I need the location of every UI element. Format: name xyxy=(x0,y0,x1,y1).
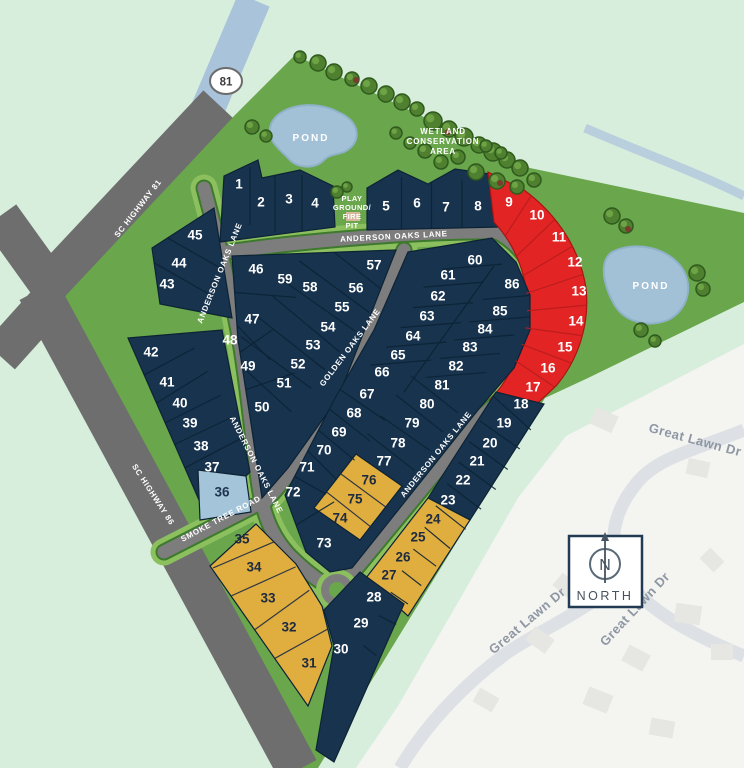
lot-number-75[interactable]: 75 xyxy=(347,492,363,507)
area-label: POND xyxy=(633,281,670,292)
lot-number-23[interactable]: 23 xyxy=(440,493,456,508)
area-label: WETLAND xyxy=(420,127,466,136)
lot-number-27[interactable]: 27 xyxy=(381,568,396,583)
lot-number-80[interactable]: 80 xyxy=(419,397,434,412)
lot-number-46[interactable]: 46 xyxy=(248,262,264,277)
lot-number-47[interactable]: 47 xyxy=(244,312,259,327)
tree-icon xyxy=(294,51,306,63)
tree-icon xyxy=(245,120,259,134)
lot-number-41[interactable]: 41 xyxy=(159,375,175,390)
area-label: PLAY xyxy=(342,194,363,203)
lot-number-82[interactable]: 82 xyxy=(448,359,463,374)
lot-number-45[interactable]: 45 xyxy=(187,228,203,243)
lot-number-81[interactable]: 81 xyxy=(434,378,450,393)
lot-number-15[interactable]: 15 xyxy=(557,340,573,355)
tree-icon xyxy=(361,78,377,94)
house-footprint xyxy=(711,644,733,660)
lot-number-2[interactable]: 2 xyxy=(257,195,265,210)
lot-number-55[interactable]: 55 xyxy=(334,300,350,315)
lot-number-49[interactable]: 49 xyxy=(240,359,255,374)
lot-number-78[interactable]: 78 xyxy=(390,436,406,451)
tree-icon xyxy=(468,164,484,180)
tree-icon xyxy=(689,265,705,281)
tree-icon xyxy=(378,86,394,102)
area-label: FIRE xyxy=(343,212,362,221)
lot-number-32[interactable]: 32 xyxy=(281,620,296,635)
lot-number-54[interactable]: 54 xyxy=(320,320,336,335)
lot-number-61[interactable]: 61 xyxy=(440,268,456,283)
tree-icon xyxy=(326,64,342,80)
lot-number-36[interactable]: 36 xyxy=(214,485,230,500)
lot-number-12[interactable]: 12 xyxy=(567,255,582,270)
lot-number-85[interactable]: 85 xyxy=(492,304,508,319)
lot-number-20[interactable]: 20 xyxy=(482,436,497,451)
shrub-icon xyxy=(625,226,631,232)
lot-number-14[interactable]: 14 xyxy=(568,314,584,329)
lot-number-35[interactable]: 35 xyxy=(234,532,250,547)
lot-number-52[interactable]: 52 xyxy=(290,357,305,372)
tree-icon xyxy=(260,130,272,142)
lot-number-79[interactable]: 79 xyxy=(404,416,419,431)
lot-number-67[interactable]: 67 xyxy=(359,387,374,402)
tree-icon xyxy=(634,323,648,337)
lot-number-60[interactable]: 60 xyxy=(467,253,482,268)
lot-number-10[interactable]: 10 xyxy=(529,208,544,223)
lot-number-37[interactable]: 37 xyxy=(204,460,219,475)
lot-number-53[interactable]: 53 xyxy=(305,338,321,353)
tree-icon xyxy=(604,208,620,224)
lot-number-68[interactable]: 68 xyxy=(346,406,362,421)
lot-number-25[interactable]: 25 xyxy=(410,530,426,545)
lot-number-86[interactable]: 86 xyxy=(504,277,520,292)
north-compass: N NORTH xyxy=(569,532,642,607)
tree-icon xyxy=(390,127,402,139)
lot-number-77[interactable]: 77 xyxy=(376,454,391,469)
lot-number-6[interactable]: 6 xyxy=(413,196,421,211)
tree-icon xyxy=(434,155,448,169)
lot-number-3[interactable]: 3 xyxy=(285,192,293,207)
house-footprint xyxy=(674,603,702,625)
lot-number-24[interactable]: 24 xyxy=(425,512,441,527)
tree-icon xyxy=(342,182,352,192)
lot-number-84[interactable]: 84 xyxy=(477,322,493,337)
lot-number-34[interactable]: 34 xyxy=(246,560,262,575)
lot-number-74[interactable]: 74 xyxy=(332,511,348,526)
lot-number-62[interactable]: 62 xyxy=(430,289,445,304)
tree-icon xyxy=(527,173,541,187)
lot-number-11[interactable]: 11 xyxy=(552,230,567,245)
lot-number-7[interactable]: 7 xyxy=(442,200,450,215)
lot-number-44[interactable]: 44 xyxy=(171,256,187,271)
compass-letter: N xyxy=(599,557,611,574)
site-plan-map: 81 1234567891011121314151617181920212223… xyxy=(0,0,744,768)
lot-number-13[interactable]: 13 xyxy=(571,284,587,299)
lot-number-22[interactable]: 22 xyxy=(455,473,470,488)
lot-number-76[interactable]: 76 xyxy=(361,473,377,488)
lot-number-9[interactable]: 9 xyxy=(505,195,513,210)
lot-number-5[interactable]: 5 xyxy=(382,199,390,214)
tree-icon xyxy=(480,140,492,152)
lot-number-26[interactable]: 26 xyxy=(395,550,411,565)
tree-icon xyxy=(649,335,661,347)
lot-number-65[interactable]: 65 xyxy=(390,348,406,363)
tree-icon xyxy=(696,282,710,296)
tree-icon xyxy=(489,173,505,189)
lot-number-40[interactable]: 40 xyxy=(172,396,187,411)
area-label: POND xyxy=(293,133,330,144)
shrub-icon xyxy=(353,77,359,83)
lot-number-56[interactable]: 56 xyxy=(348,281,364,296)
tree-icon xyxy=(512,160,528,176)
lot-number-31[interactable]: 31 xyxy=(301,656,317,671)
area-label: AREA xyxy=(430,147,456,156)
lot-number-19[interactable]: 19 xyxy=(496,416,511,431)
tree-icon xyxy=(510,180,524,194)
lot-number-51[interactable]: 51 xyxy=(276,376,292,391)
lot-number-1[interactable]: 1 xyxy=(235,177,243,192)
tree-icon xyxy=(394,94,410,110)
highway-shield-number: 81 xyxy=(220,77,233,89)
lot-number-48[interactable]: 48 xyxy=(222,333,238,348)
lot-number-8[interactable]: 8 xyxy=(474,199,482,214)
lot-number-29[interactable]: 29 xyxy=(353,616,368,631)
lot-number-33[interactable]: 33 xyxy=(260,591,276,606)
area-label: GROUND/ xyxy=(333,203,372,212)
lot-number-64[interactable]: 64 xyxy=(405,329,421,344)
lot-number-18[interactable]: 18 xyxy=(513,397,529,412)
lot-number-71[interactable]: 71 xyxy=(299,460,315,475)
shrub-icon xyxy=(497,180,503,186)
lot-number-4[interactable]: 4 xyxy=(311,196,319,211)
lot-number-58[interactable]: 58 xyxy=(302,280,318,295)
lot-number-30[interactable]: 30 xyxy=(333,642,348,657)
lot-number-50[interactable]: 50 xyxy=(254,400,269,415)
lot-number-73[interactable]: 73 xyxy=(316,536,332,551)
compass-label: NORTH xyxy=(577,589,634,603)
lot-number-42[interactable]: 42 xyxy=(143,345,158,360)
lot-number-72[interactable]: 72 xyxy=(285,485,300,500)
lot-number-16[interactable]: 16 xyxy=(540,361,556,376)
lot-number-70[interactable]: 70 xyxy=(316,443,331,458)
tree-icon xyxy=(310,55,326,71)
lot-number-69[interactable]: 69 xyxy=(331,425,346,440)
area-label: CONSERVATION xyxy=(407,137,480,146)
highway-81-shield: 81 xyxy=(210,68,242,94)
lot-number-66[interactable]: 66 xyxy=(374,365,390,380)
lot-number-57[interactable]: 57 xyxy=(366,258,381,273)
tree-icon xyxy=(495,147,507,159)
lot-number-21[interactable]: 21 xyxy=(469,454,485,469)
lot-number-83[interactable]: 83 xyxy=(462,340,478,355)
lot-number-39[interactable]: 39 xyxy=(182,416,197,431)
lot-number-63[interactable]: 63 xyxy=(419,309,435,324)
tree-icon xyxy=(410,102,424,116)
lot-number-28[interactable]: 28 xyxy=(366,590,382,605)
area-label: PIT xyxy=(346,221,359,230)
lot-number-17[interactable]: 17 xyxy=(525,380,540,395)
lot-number-38[interactable]: 38 xyxy=(193,439,209,454)
lot-number-43[interactable]: 43 xyxy=(159,277,175,292)
lot-number-59[interactable]: 59 xyxy=(277,272,292,287)
